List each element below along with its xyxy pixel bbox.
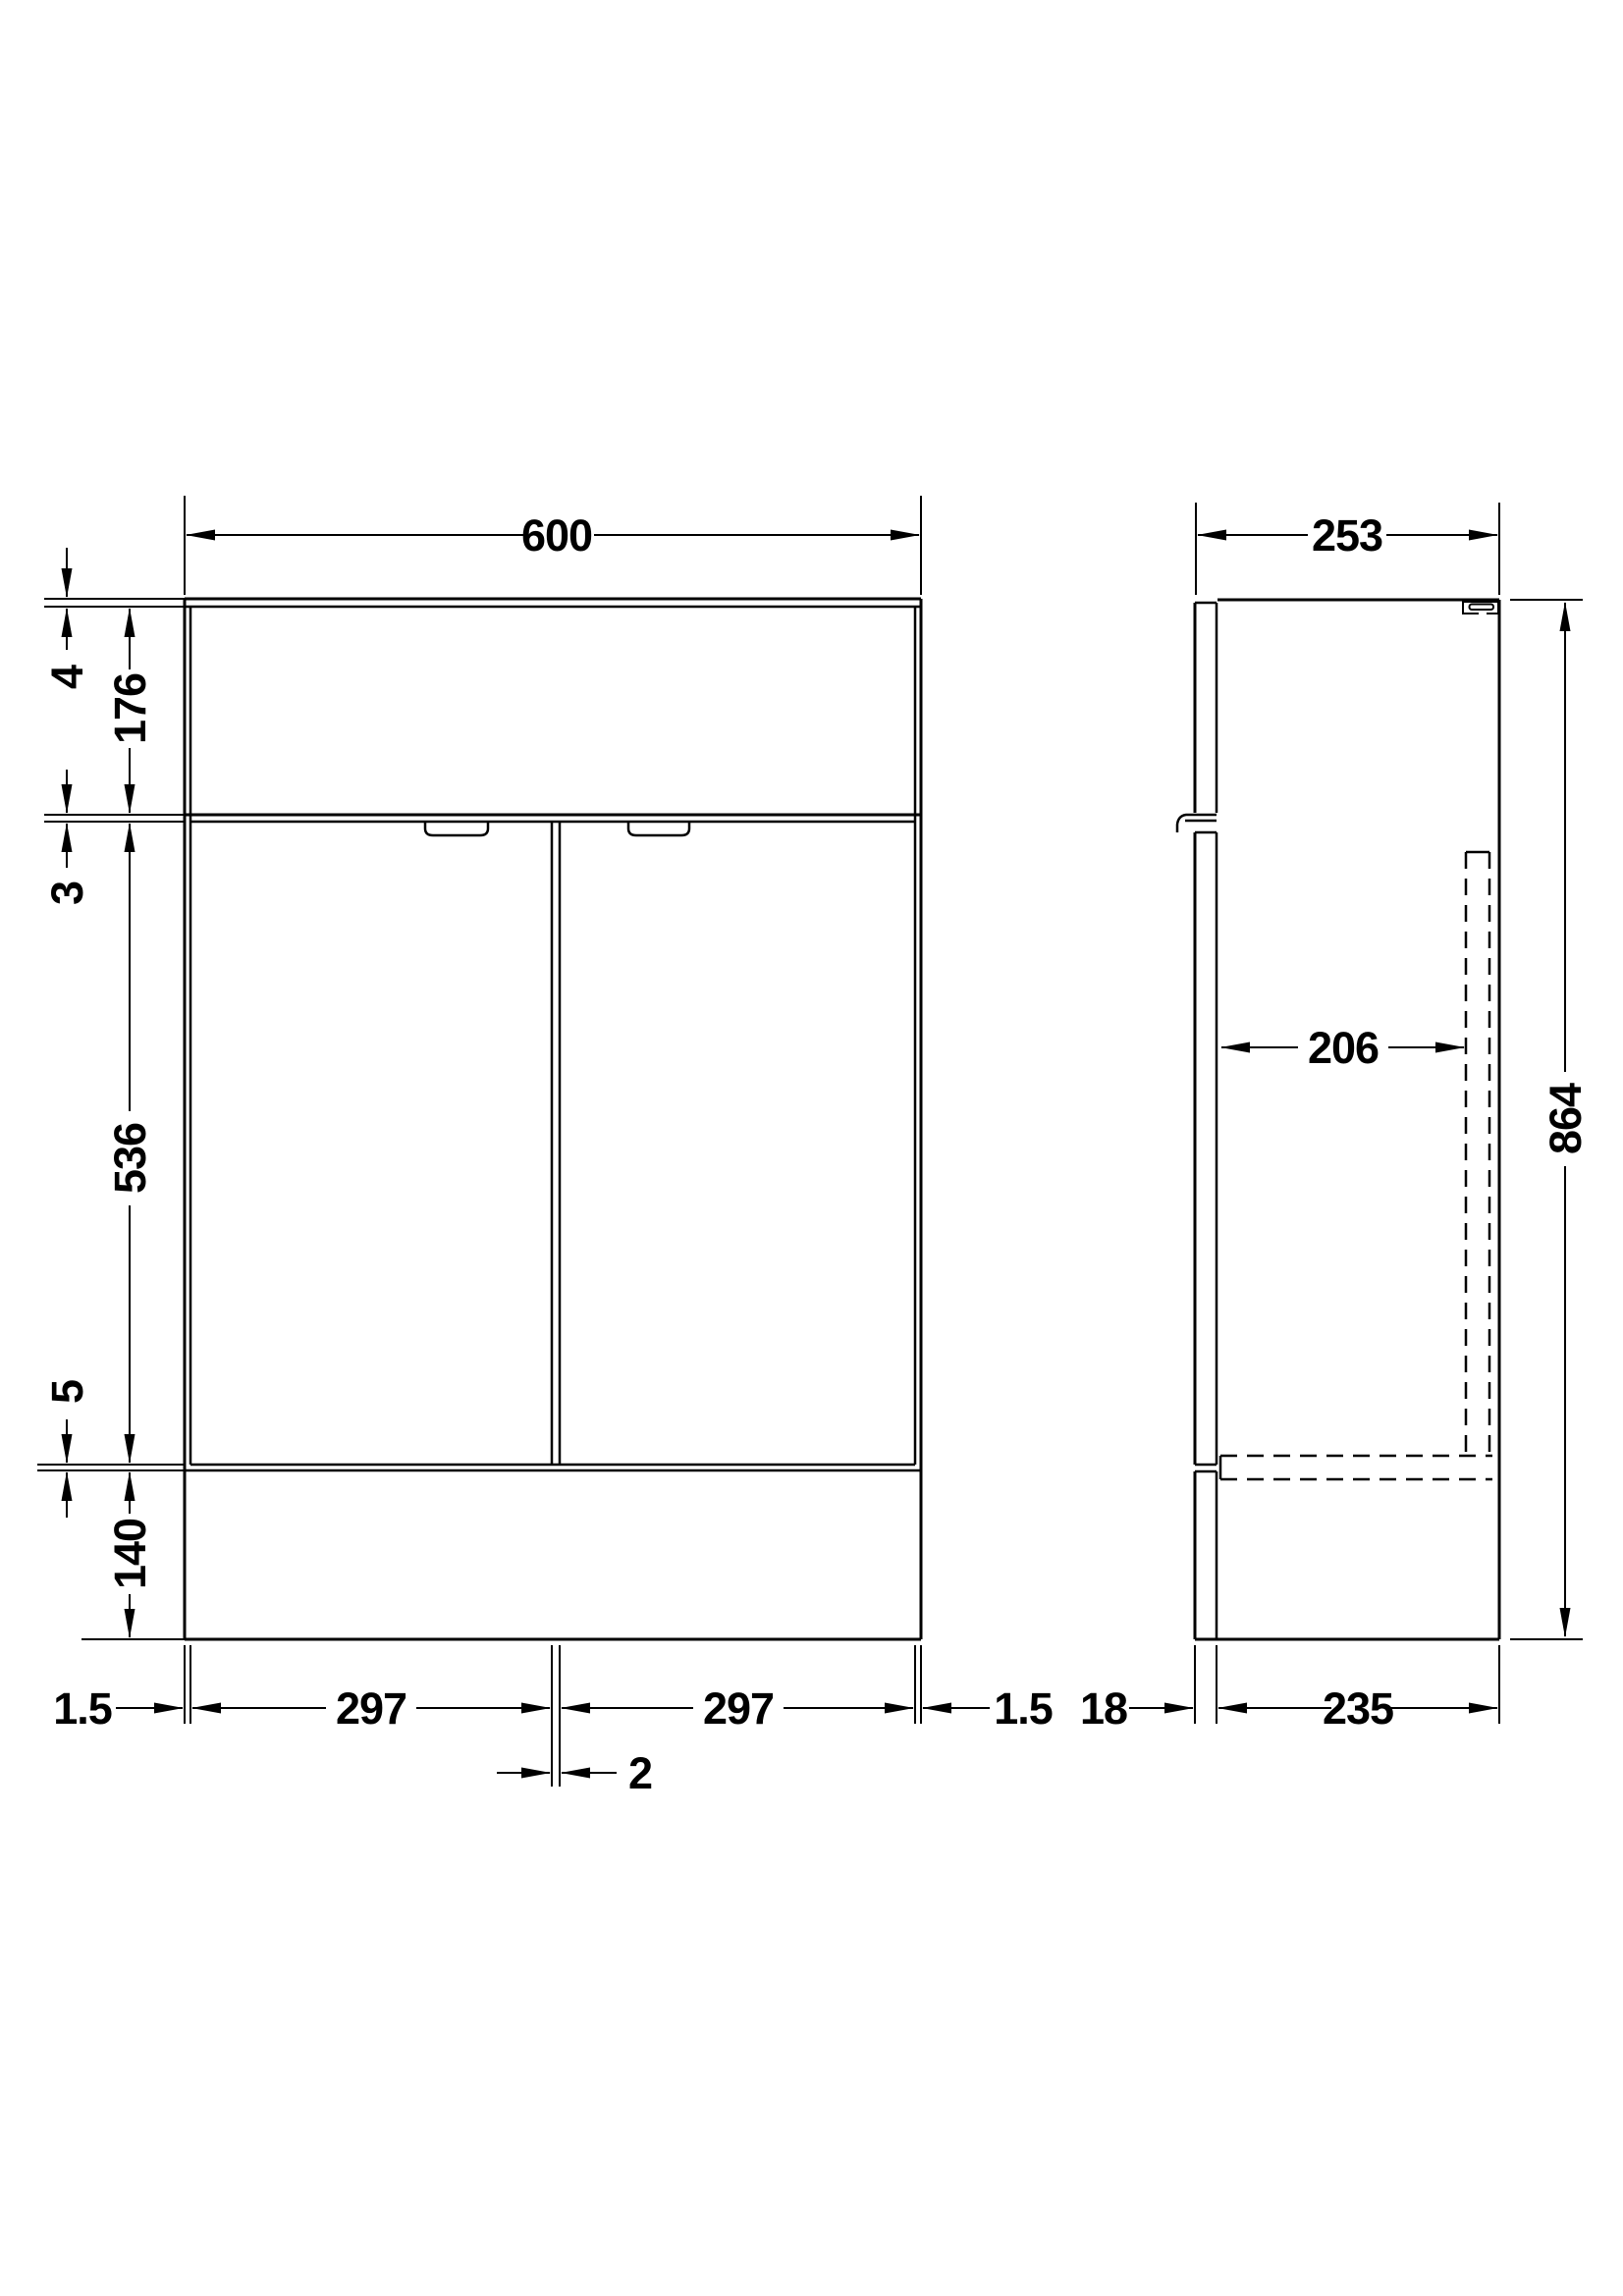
side-extension-lines	[1195, 503, 1583, 1724]
dim-overall-height-label: 864	[1541, 1083, 1591, 1154]
dim-fascia-door-gap-label: 3	[42, 881, 92, 905]
dim-fascia-height-label: 176	[105, 673, 155, 744]
dim-internal-depth: 206	[1221, 1023, 1464, 1073]
dimension-annotations: 600 253 4 176 3 536	[37, 496, 1591, 1798]
dim-carcass-depth-label: 235	[1323, 1683, 1393, 1734]
dim-overall-depth: 253	[1198, 510, 1497, 561]
right-door-handle-notch	[628, 823, 689, 835]
dim-overall-width-label: 600	[521, 510, 592, 561]
vanity-technical-drawing: 600 253 4 176 3 536	[0, 0, 1623, 2296]
dim-edge-gap-right-label: 1.5	[994, 1683, 1053, 1734]
dim-right-door-width: 297	[562, 1683, 913, 1734]
dim-counter-thickness-label: 4	[42, 665, 92, 689]
dim-counter-thickness: 4	[42, 548, 92, 689]
wall-bracket	[1463, 602, 1498, 615]
front-doors	[190, 822, 915, 1465]
dim-edge-gap-left-label: 1.5	[53, 1683, 112, 1734]
front-extension-lines	[37, 496, 921, 1787]
dim-fascia-height: 176	[105, 609, 155, 813]
drawing-sheet: 600 253 4 176 3 536	[0, 0, 1623, 2296]
hidden-bottom-shelf	[1220, 1456, 1492, 1479]
dim-fascia-door-gap: 3	[42, 770, 92, 905]
dim-door-height: 536	[105, 824, 155, 1463]
dim-plinth-height: 140	[105, 1472, 155, 1637]
dim-right-door-width-label: 297	[703, 1683, 774, 1734]
dim-door-plinth-gap: 5	[42, 1380, 92, 1518]
dim-overall-height: 864	[1541, 603, 1591, 1636]
left-door-handle-notch	[425, 823, 488, 835]
dim-overall-depth-label: 253	[1312, 510, 1382, 561]
dim-door-plinth-gap-label: 5	[42, 1380, 92, 1404]
side-front-panels	[1195, 603, 1217, 1639]
side-carcass-outline	[1195, 600, 1499, 1639]
front-view	[185, 599, 921, 1639]
dim-overall-width: 600	[187, 510, 919, 561]
dim-door-height-label: 536	[105, 1123, 155, 1194]
side-basin-lip	[1177, 815, 1217, 832]
dim-edge-gap-left: 1.5	[53, 1683, 183, 1734]
dim-edge-gap-right: 1.5	[923, 1683, 1053, 1734]
dim-carcass-depth: 235	[1218, 1683, 1497, 1734]
dim-door-thickness: 18	[1080, 1683, 1193, 1734]
dim-door-gap-label: 2	[628, 1748, 652, 1798]
side-view	[1177, 600, 1499, 1639]
hidden-internal-partition	[1466, 852, 1489, 1456]
dim-left-door-width-label: 297	[336, 1683, 406, 1734]
dim-door-gap: 2	[497, 1748, 652, 1798]
bracket-notch	[1479, 612, 1487, 615]
dim-internal-depth-label: 206	[1308, 1023, 1379, 1073]
dim-door-thickness-label: 18	[1080, 1683, 1127, 1734]
dim-left-door-width: 297	[192, 1683, 550, 1734]
dim-plinth-height-label: 140	[105, 1519, 155, 1589]
